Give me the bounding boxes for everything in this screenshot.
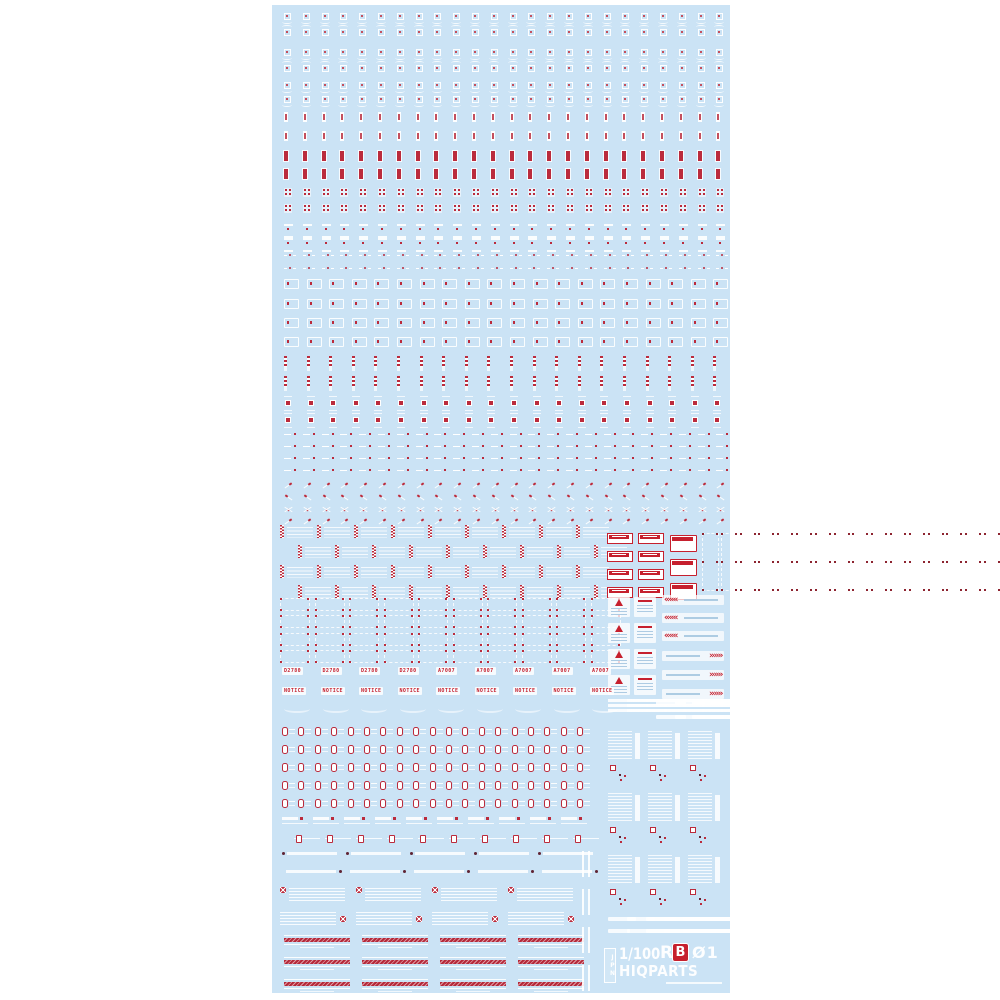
decal-pill (348, 781, 362, 790)
decal-tDashDot (284, 444, 297, 448)
decal-tRedBar (528, 169, 532, 179)
decal-tBoxTick (691, 337, 706, 347)
decal-tBar (660, 112, 664, 122)
decal-tBoxTick (623, 318, 638, 328)
decal-dframe (522, 615, 552, 628)
decal-tA (434, 82, 441, 89)
decal-tBar (566, 131, 570, 141)
decal-tA (397, 49, 404, 56)
decal-tBand (585, 224, 594, 238)
decal-tB (397, 29, 404, 36)
decal-tQuad (434, 204, 442, 213)
decal-tDotWing (698, 266, 710, 271)
decal-tDashDot (622, 444, 635, 448)
decal-tBand (416, 224, 425, 238)
decal-tBoxTick (713, 279, 728, 289)
decal-tSlash (453, 518, 462, 525)
decal-tA (547, 49, 554, 56)
decal-tBoxTick (533, 337, 548, 347)
decal-tB (416, 65, 423, 72)
decal-tQuad (660, 188, 668, 197)
decal-caution (465, 525, 501, 542)
decal-tA (303, 96, 310, 103)
decal-strip (993, 715, 1000, 719)
decal-caution (539, 525, 575, 542)
decal-stripDot (282, 851, 338, 857)
decal-tRedSq (307, 396, 315, 411)
decal-tSlash (472, 482, 481, 489)
decal-tDashDot (397, 456, 410, 460)
decal-tDotWing (585, 253, 597, 258)
decal-tB (510, 65, 517, 72)
decal-tA (716, 49, 723, 56)
decal-tBar (585, 112, 589, 122)
decal-tDashDot (284, 456, 297, 460)
decal-caution (465, 565, 501, 582)
decal-tSlash2 (585, 494, 594, 501)
decal-tA (303, 13, 310, 20)
decal-tBoxTick (713, 337, 728, 347)
decal-tZig (420, 376, 423, 387)
decal-tQuad (585, 188, 593, 197)
decal-tBar (622, 112, 626, 122)
decal-tQuad (622, 188, 630, 197)
decal-pill (397, 745, 411, 754)
decal-pill (282, 781, 296, 790)
decal-tA (660, 13, 667, 20)
decal-tDotWing (322, 266, 334, 271)
decal-tB (378, 29, 385, 36)
decal-tQuad (284, 204, 292, 213)
decal-dframeV (946, 533, 963, 591)
decal-tRedBar (566, 151, 570, 161)
decal-tBar (604, 112, 608, 122)
decal-tQuad (340, 188, 348, 197)
decal-tBand (585, 238, 594, 252)
decal-tA (472, 82, 479, 89)
decal-pill (380, 745, 394, 754)
decal-tBar (528, 131, 532, 141)
decal-txXR (280, 911, 346, 929)
decal-tBoxTick (352, 318, 367, 328)
decal-tA (641, 13, 648, 20)
decal-tBoxTick (442, 299, 457, 309)
decal-caution (354, 565, 390, 582)
decal-tB (303, 29, 310, 36)
decal-pill (348, 763, 362, 772)
decal-tA (528, 13, 535, 20)
decal-tRedSq (465, 413, 473, 428)
decal-tA (434, 96, 441, 103)
decal-pill (528, 781, 542, 790)
decal-tA (566, 82, 573, 89)
decal-tDashDot (472, 468, 485, 472)
decal-tA (303, 82, 310, 89)
decal-tSlash (679, 518, 688, 525)
decal-pill (544, 799, 558, 808)
decal-tDashDot (698, 468, 711, 472)
decal-tBand (472, 224, 481, 238)
decal-tDashDot (340, 468, 353, 472)
decal-tBoxTick (600, 318, 615, 328)
decal-plateS (607, 533, 633, 544)
decal-tDashDot (472, 456, 485, 460)
decal-tSlash2 (622, 494, 631, 501)
decal-tX (303, 506, 312, 514)
decal-tRedBar (434, 151, 438, 161)
decal-tQuad (397, 188, 405, 197)
decal-tX (453, 506, 462, 514)
decal-tB (528, 65, 535, 72)
decal-tBand (510, 238, 519, 252)
decal-tDashDot (284, 468, 297, 472)
decal-tBoxTick (374, 337, 389, 347)
decal-tBand (566, 238, 575, 252)
decal-tA (434, 13, 441, 20)
decal-tA (547, 13, 554, 20)
decal-tA (698, 82, 705, 89)
decal-tZig (307, 356, 310, 367)
decal-pill (298, 799, 312, 808)
decal-tRedSq (668, 396, 676, 411)
decal-dframe (453, 598, 483, 611)
decal-swoosh (477, 705, 503, 713)
decal-tRedSq (510, 396, 518, 411)
decal-txX (508, 887, 574, 905)
decal-tBand (716, 224, 725, 238)
decal-dframe (349, 650, 379, 663)
decal-tA (510, 13, 517, 20)
decal-tRedBar (510, 169, 514, 179)
decal-pill (462, 781, 476, 790)
decal-pill (331, 781, 345, 790)
decal-tA (434, 49, 441, 56)
decal-dframe (556, 615, 586, 628)
decal-tB (641, 29, 648, 36)
decal-tQuad (453, 188, 461, 197)
decal-tDotWing (679, 253, 691, 258)
decal-hatch (440, 935, 506, 945)
decal-tB (622, 29, 629, 36)
decal-dframe (418, 615, 448, 628)
decal-tDashDot (585, 432, 598, 436)
decal-rtext (608, 793, 644, 845)
decal-pill (446, 781, 460, 790)
decal-tX (566, 506, 575, 514)
decal-pill (430, 781, 444, 790)
decal-rtext (648, 793, 684, 845)
decal-tDashDot (528, 468, 541, 472)
decal-pill (315, 745, 329, 754)
decal-tBand (340, 238, 349, 252)
decal-stripDotR (286, 869, 342, 875)
decal-tB (585, 65, 592, 72)
decal-tSlash (566, 482, 575, 489)
decal-tDotWing (547, 266, 559, 271)
decal-tDashDot (340, 432, 353, 436)
decal-tZig (352, 376, 355, 387)
decal-tDashDot (604, 444, 617, 448)
decal-tDashDot (322, 444, 335, 448)
decal-tRedSq (600, 396, 608, 411)
decal-tDotWing (434, 253, 446, 258)
decal-strip (989, 929, 1000, 933)
decal-pill (413, 763, 427, 772)
decal-tDashDot (303, 468, 316, 472)
decal-tZig (397, 356, 400, 367)
decal-pill (577, 763, 591, 772)
decal-tBand (434, 224, 443, 238)
decal-tDashDot (378, 468, 391, 472)
series-letter-r: R (660, 945, 673, 962)
decal-labelR: A7007 (513, 667, 534, 675)
decal-tBar (416, 112, 420, 122)
decal-tBar (397, 131, 401, 141)
decal-tBar (491, 131, 495, 141)
decal-plateS (607, 551, 633, 562)
decal-tRedSq (374, 396, 382, 411)
decal-tDashDot (434, 456, 447, 460)
decal-tDashDot (397, 444, 410, 448)
decal-tag2 (480, 835, 508, 844)
decal-tQuad (547, 204, 555, 213)
decal-tBar (359, 131, 363, 141)
decal-tB (434, 65, 441, 72)
decal-tDotWing (491, 266, 503, 271)
decal-pill (544, 745, 558, 754)
decal-tSlash (453, 482, 462, 489)
decal-tQuad (660, 204, 668, 213)
decal-tBoxTick (510, 337, 525, 347)
decal-tA (378, 82, 385, 89)
decal-tRedBar (472, 151, 476, 161)
decal-caution (280, 525, 316, 542)
decal-tSlash2 (716, 494, 725, 501)
decal-tRedSq (442, 396, 450, 411)
decal-tRedBar (679, 169, 683, 179)
decal-tBoxTick (691, 279, 706, 289)
decal-tA (453, 82, 460, 89)
decal-tDashDot (716, 444, 729, 448)
decal-txXR (432, 911, 498, 929)
decal-tBoxTick (397, 337, 412, 347)
decal-tBar (416, 131, 420, 141)
decal-tBand (491, 224, 500, 238)
decal-tSlash2 (303, 494, 312, 501)
decal-tBoxTick (691, 299, 706, 309)
decal-pill (561, 745, 575, 754)
decal-tSlash (622, 482, 631, 489)
decal-tRedBar (340, 169, 344, 179)
decal-tRedSq (284, 396, 292, 411)
decal-strip (989, 917, 1000, 921)
decal-tX (641, 506, 650, 514)
decal-tZig (420, 356, 423, 367)
decal-dframe (487, 633, 517, 646)
decal-tDashDot (378, 444, 391, 448)
decal-tBar (641, 131, 645, 141)
decal-tBar (434, 112, 438, 122)
decal-plateL (670, 535, 697, 552)
decal-tBoxTick (646, 318, 661, 328)
decal-caution (483, 545, 519, 562)
decal-tA (416, 49, 423, 56)
decal-tRedSq (691, 396, 699, 411)
decal-tZig (691, 356, 694, 367)
decal-tSlash (528, 482, 537, 489)
decal-tQuad (491, 188, 499, 197)
decal-hatch (518, 979, 584, 989)
decal-tZig (555, 356, 558, 367)
decal-tSlash2 (510, 494, 519, 501)
decal-pill (430, 727, 444, 736)
decal-tSlash2 (679, 494, 688, 501)
decal-tBand (698, 224, 707, 238)
decal-labelR: A7007 (475, 667, 496, 675)
decal-tDotWing (491, 253, 503, 258)
decal-plateS (607, 569, 633, 580)
decal-dframe (349, 598, 379, 611)
decal-tSlash (660, 482, 669, 489)
decal-tRedBar (303, 151, 307, 161)
decal-tA (528, 96, 535, 103)
decal-tQuad (453, 204, 461, 213)
decal-tSlash (660, 518, 669, 525)
decal-hatch (284, 979, 350, 989)
decal-tA (340, 82, 347, 89)
decal-caution (354, 525, 390, 542)
decal-tDashDot (491, 432, 504, 436)
decal-tDashDot (510, 444, 523, 448)
decal-tDotWing (528, 253, 540, 258)
decal-tDashDot (303, 444, 316, 448)
decal-pill (561, 799, 575, 808)
decal-dframeV (984, 533, 1000, 591)
decal-tSlash (547, 518, 556, 525)
decal-tDashDot (660, 456, 673, 460)
decal-tQuad (604, 188, 612, 197)
decal-tBoxTick (465, 337, 480, 347)
decal-tA (472, 13, 479, 20)
decal-tZig (442, 376, 445, 387)
decal-tBar (716, 112, 720, 122)
decal-chevL (662, 613, 724, 623)
decal-tA (547, 96, 554, 103)
decal-tBoxTick (352, 299, 367, 309)
decal-tRedSq (329, 396, 337, 411)
decal-tBoxTick (420, 318, 435, 328)
decal-tZig (646, 356, 649, 367)
decal-tZig (487, 376, 490, 387)
decal-tBoxTick (465, 318, 480, 328)
decal-tDashDot (378, 432, 391, 436)
decal-tA (472, 49, 479, 56)
decal-tBoxTick (578, 337, 593, 347)
decal-txXR (508, 911, 574, 929)
decal-tBoxTick (623, 337, 638, 347)
decal-pill (315, 727, 329, 736)
decal-tRedSq (646, 396, 654, 411)
decal-tDashDot (359, 456, 372, 460)
decal-tBoxTick (510, 318, 525, 328)
decal-tRedBar (566, 169, 570, 179)
decal-sheet: D2780D2780D2780D2780A7007A7007A7007A7007… (272, 5, 730, 993)
decal-tBar (397, 112, 401, 122)
decal-tRedSq (623, 413, 631, 428)
decal-tSlash2 (472, 494, 481, 501)
decal-tRedBar (622, 169, 626, 179)
decal-labelR: A7007 (436, 667, 457, 675)
decal-tRedBar (528, 151, 532, 161)
decal-tDashDot (716, 432, 729, 436)
decal-pill (528, 727, 542, 736)
decal-tBand (547, 224, 556, 238)
decal-tBand (359, 238, 368, 252)
decal-dframe (556, 598, 586, 611)
decal-tRedSq (284, 413, 292, 428)
decal-tRedBar (491, 169, 495, 179)
decal-tBoxTick (487, 337, 502, 347)
decal-tDashDot (547, 456, 560, 460)
decal-tQuad (585, 204, 593, 213)
decal-tSlash (416, 518, 425, 525)
decal-tDotWing (453, 266, 465, 271)
decal-tSlash (340, 518, 349, 525)
decal-hatch (284, 935, 350, 945)
decal-tRedSq (691, 413, 699, 428)
decal-tDashDot (284, 432, 297, 436)
decal-tag (530, 817, 558, 826)
decal-tBoxTick (374, 318, 389, 328)
decal-tB (359, 29, 366, 36)
decal-pill (364, 727, 378, 736)
decal-dframe (315, 598, 345, 611)
decal-tBoxTick (284, 318, 299, 328)
decal-tDashDot (322, 456, 335, 460)
decal-tDashDot (679, 456, 692, 460)
decal-tBar (660, 131, 664, 141)
decal-dframe (280, 633, 310, 646)
decal-tX (622, 506, 631, 514)
decal-tDashDot (397, 468, 410, 472)
decal-tB (359, 65, 366, 72)
decal-tZig (646, 376, 649, 387)
decal-tRedBar (472, 169, 476, 179)
decal-tBoxTick (420, 337, 435, 347)
decal-tBar (359, 112, 363, 122)
decal-tB (716, 29, 723, 36)
decal-tag2 (356, 835, 384, 844)
decal-pill (479, 799, 493, 808)
decal-pill (298, 781, 312, 790)
decal-tA (359, 82, 366, 89)
decal-tA (378, 49, 385, 56)
decal-dframe (384, 633, 414, 646)
decal-caution (502, 565, 538, 582)
decal-pill (446, 727, 460, 736)
decal-swoosh (323, 705, 349, 713)
decal-stripDot (538, 851, 594, 857)
decal-tDashDot (547, 432, 560, 436)
decal-vdash (582, 927, 584, 953)
decal-tA (528, 49, 535, 56)
decal-tDashDot (641, 432, 654, 436)
decal-tSlash2 (397, 494, 406, 501)
decal-tX (698, 506, 707, 514)
decal-pill (397, 781, 411, 790)
decal-tSlash (491, 518, 500, 525)
decal-tSlash (698, 518, 707, 525)
